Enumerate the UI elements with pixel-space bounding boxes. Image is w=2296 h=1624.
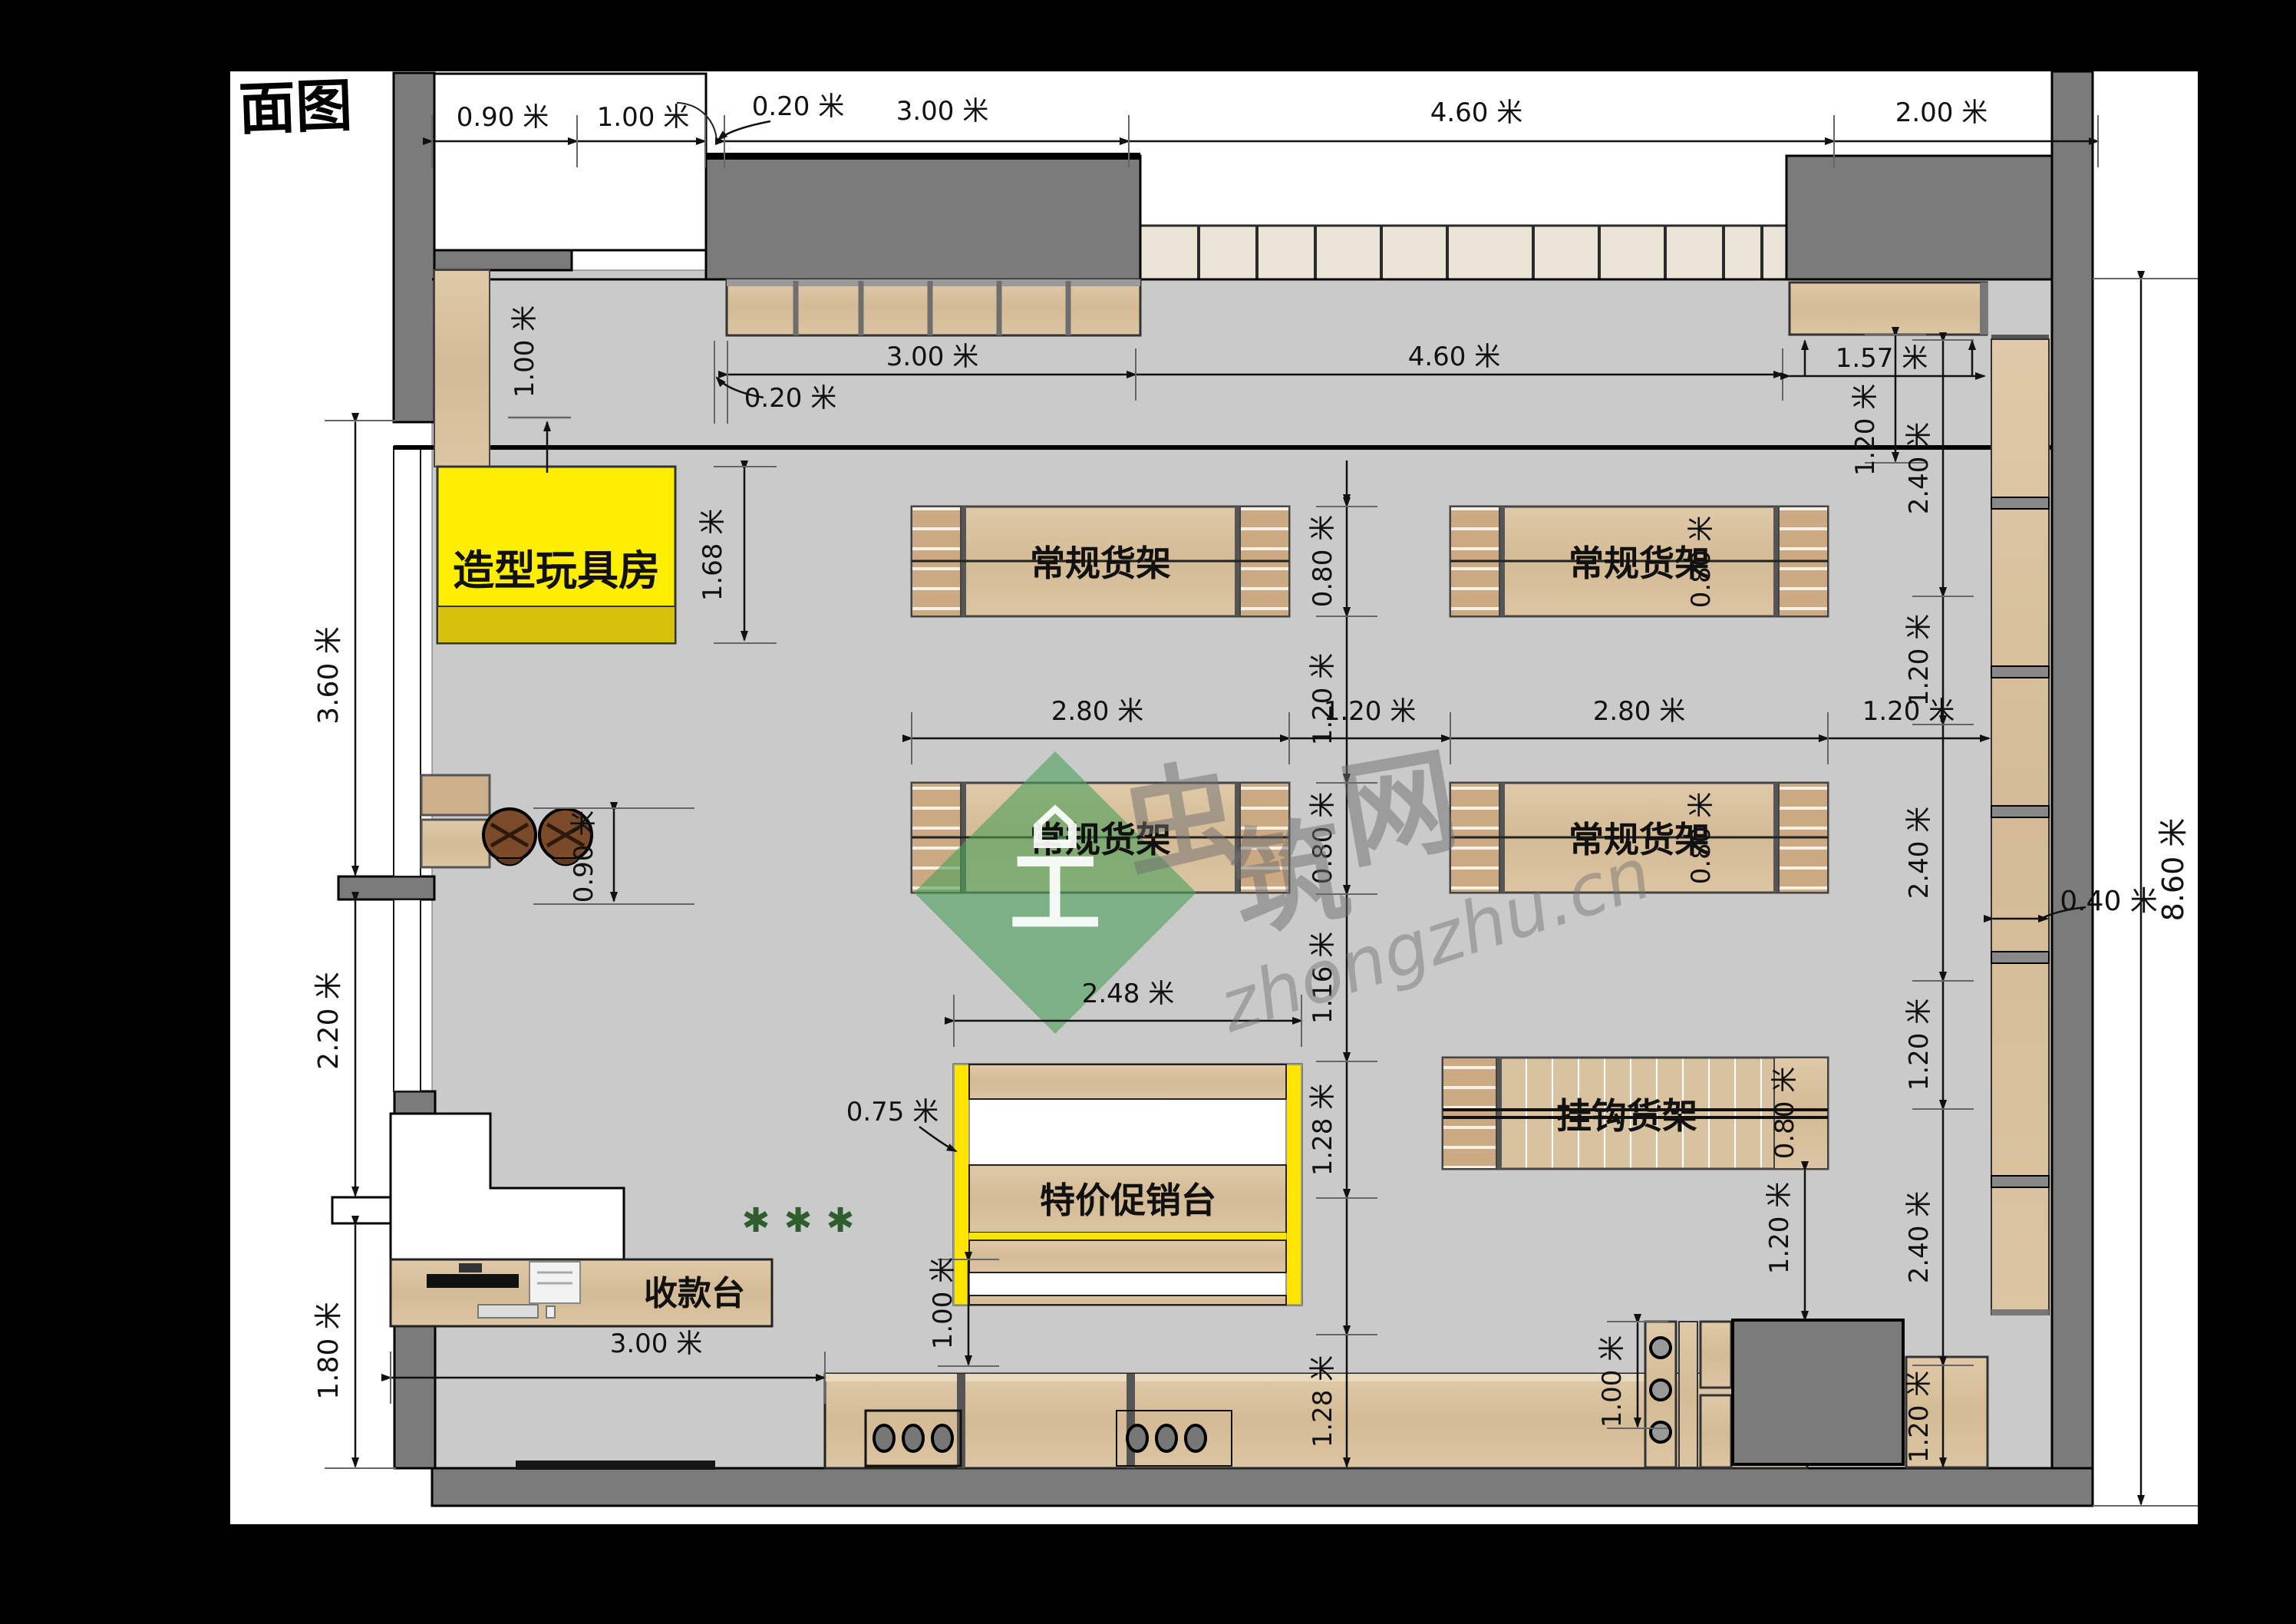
dim-label: 2.20 米: [313, 972, 345, 1070]
label-shelfA: 常规货架: [1030, 543, 1171, 584]
dim-label: 0.40 米: [2060, 886, 2158, 917]
wall-bottom: [432, 1468, 2093, 1506]
dim-label: 2.40 米: [1904, 1191, 1935, 1284]
wall-right: [2052, 71, 2093, 1506]
plant-icon: ✱: [826, 1201, 855, 1240]
bottom-display-bar: [516, 1461, 715, 1470]
floorplan-svg: ✱ ✱ ✱: [0, 0, 2296, 1624]
left-cabinets: [421, 775, 490, 867]
wall-shelf-row-top: [727, 279, 1140, 335]
wall-block-top-left-edge: [706, 153, 1140, 160]
dim-label: 1.28 米: [1308, 1084, 1338, 1177]
dim-label: 8.60 米: [2156, 818, 2190, 922]
dim-label: 2.40 米: [1904, 807, 1935, 899]
plants: ✱ ✱ ✱: [742, 1201, 855, 1240]
label-hook: 挂钩货架: [1556, 1095, 1697, 1137]
label-cashier: 收款台: [644, 1274, 745, 1313]
dim-label: 2.80 米: [1051, 696, 1144, 727]
label-shelfB: 常规货架: [1569, 543, 1710, 584]
entry-vestibule: [434, 74, 717, 250]
dim-label: 1.20 米: [1904, 998, 1935, 1091]
dim-label: 1.20 米: [1850, 384, 1881, 477]
dim-label: ⌂: [1029, 781, 1081, 866]
dim-label: 2.80 米: [1593, 696, 1686, 727]
dim-label: 0.80 米: [1770, 1067, 1800, 1160]
storage-block: [1733, 1320, 1903, 1464]
dim-label: 1.00 米: [510, 305, 540, 398]
dim-label: 0.75 米: [846, 1097, 939, 1127]
dim-label: 1.20 米: [1324, 696, 1417, 727]
label-title: 面图: [238, 73, 354, 143]
dim-label: 0.80 米: [1308, 515, 1338, 608]
dim-label: 3.00 米: [896, 96, 989, 127]
label-toyroom: 造型玩具房: [453, 546, 660, 595]
plant-icon: ✱: [742, 1201, 770, 1240]
dim-label: 2.00 米: [1895, 97, 1988, 128]
wall-block-top-right: [1786, 156, 2060, 279]
dim-label: 2.40 米: [1904, 422, 1935, 515]
dim-label: 3.00 米: [886, 342, 979, 372]
dim-label: 0.20 米: [752, 91, 845, 122]
monitor-icon: [427, 1274, 519, 1288]
keyboard-icon: [478, 1305, 538, 1318]
floorplan-canvas: ✱ ✱ ✱: [0, 0, 2296, 1624]
storefront-display-panels: [1140, 226, 1786, 279]
dim-label: 3.60 米: [313, 626, 345, 725]
wall-left-upper: [394, 73, 434, 422]
dim-label: 4.60 米: [1430, 97, 1523, 128]
dim-label: 1.57 米: [1836, 343, 1928, 374]
wall-pier-left: [338, 876, 434, 899]
dim-label: 网: [1331, 734, 1467, 885]
dim-label: 1.00 米: [928, 1257, 958, 1350]
wall-end-cap: [332, 1197, 396, 1223]
dim-label: 1.28 米: [1308, 1355, 1338, 1448]
dim-label: 1.20 米: [1904, 614, 1935, 707]
dim-label: 1.00 米: [597, 102, 690, 133]
dim-label: 0.90 米: [569, 810, 599, 903]
dim-label: 1.20 米: [1904, 1371, 1935, 1464]
dim-label: 1.68 米: [698, 509, 728, 602]
wall-block-top-left: [706, 156, 1140, 279]
monitor-stand-icon: [459, 1263, 482, 1272]
dim-label: 3.00 米: [610, 1329, 703, 1359]
dim-label: 1.80 米: [313, 1302, 345, 1400]
dim-label: 0.90 米: [457, 102, 549, 133]
wall-shelf-left-strip: [434, 270, 490, 467]
dim-label: 2.48 米: [1082, 979, 1175, 1009]
mouse-icon: [546, 1306, 555, 1318]
dim-label: 4.60 米: [1408, 342, 1501, 372]
dim-label: 0.20 米: [744, 383, 837, 414]
plant-icon: ✱: [784, 1201, 813, 1240]
dim-label: 1.20 米: [1764, 1182, 1795, 1275]
wall-vestibule-ledge: [434, 250, 572, 270]
dim-label: 1.00 米: [1597, 1335, 1628, 1428]
label-promo: 特价促销台: [1040, 1180, 1216, 1221]
